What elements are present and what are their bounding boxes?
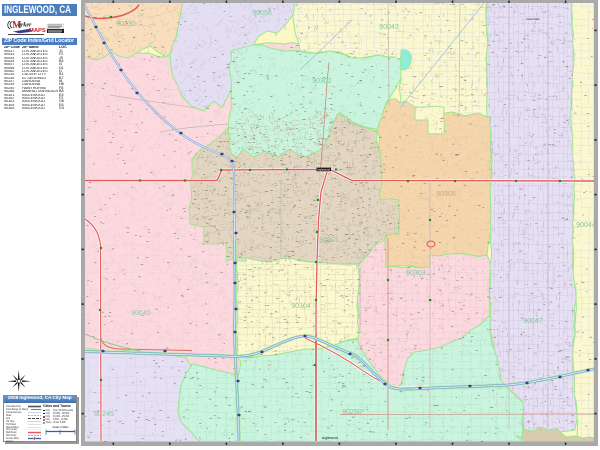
svg-text:90044: 90044	[576, 222, 596, 229]
svg-text:90043: 90043	[379, 24, 399, 31]
svg-text:90230: 90230	[116, 21, 136, 28]
svg-text:90047: 90047	[523, 318, 543, 325]
svg-text:Inglewood: Inglewood	[317, 168, 330, 172]
svg-text:View Park: View Park	[526, 17, 540, 21]
svg-text:Inglewood: Inglewood	[322, 436, 338, 440]
svg-text:0: 0	[45, 434, 47, 435]
svg-text:90245: 90245	[94, 411, 114, 418]
svg-text:90056: 90056	[252, 10, 272, 17]
svg-text:90045: 90045	[131, 310, 151, 317]
svg-text:90250: 90250	[342, 409, 362, 416]
svg-text:2: 2	[74, 434, 76, 435]
svg-text:90305: 90305	[436, 191, 456, 198]
svg-text:90302: 90302	[312, 78, 332, 85]
svg-text:90304: 90304	[291, 303, 311, 310]
svg-text:1: 1	[59, 434, 61, 435]
svg-text:90303: 90303	[406, 270, 426, 277]
svg-text:90301: 90301	[319, 237, 339, 244]
